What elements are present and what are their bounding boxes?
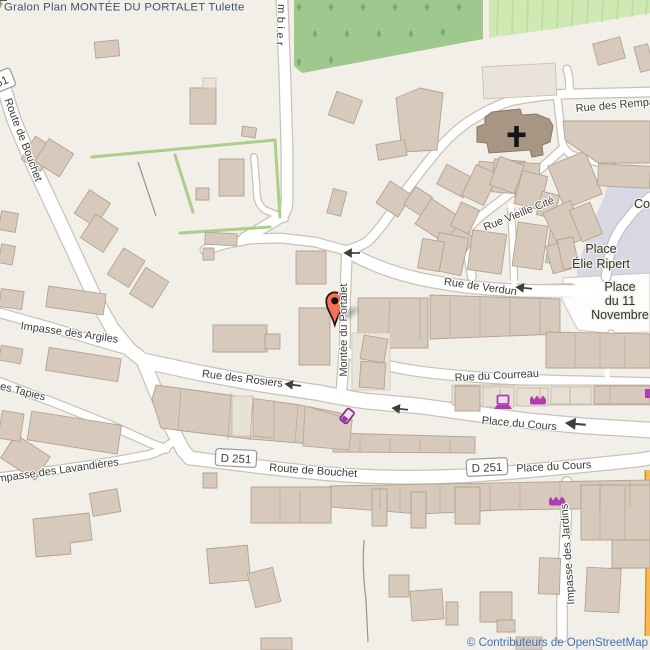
- svg-text:Place: Place: [604, 280, 635, 294]
- svg-text:Gralon Plan MONTÉE DU PORTALET: Gralon Plan MONTÉE DU PORTALET Tulette: [4, 1, 245, 14]
- svg-text:D 251: D 251: [220, 453, 251, 467]
- svg-text:Cours: Cours: [634, 197, 650, 211]
- svg-text:Montée du Portalet: Montée du Portalet: [338, 284, 350, 377]
- svg-text:du 11: du 11: [605, 294, 635, 308]
- svg-text:Place: Place: [585, 242, 616, 256]
- svg-text:mbier: mbier: [273, 4, 287, 49]
- svg-text:Élie Ripert: Élie Ripert: [572, 256, 630, 271]
- svg-text:© Contributeurs de OpenStreetM: © Contributeurs de OpenStreetMap: [467, 637, 648, 649]
- svg-text:D 251: D 251: [471, 462, 502, 476]
- svg-text:Novembre: Novembre: [591, 308, 649, 322]
